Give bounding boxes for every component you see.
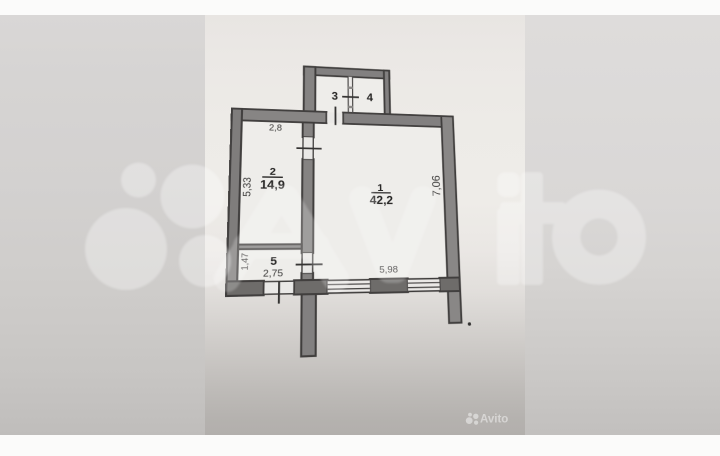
svg-text:Avito: Avito: [480, 414, 508, 426]
